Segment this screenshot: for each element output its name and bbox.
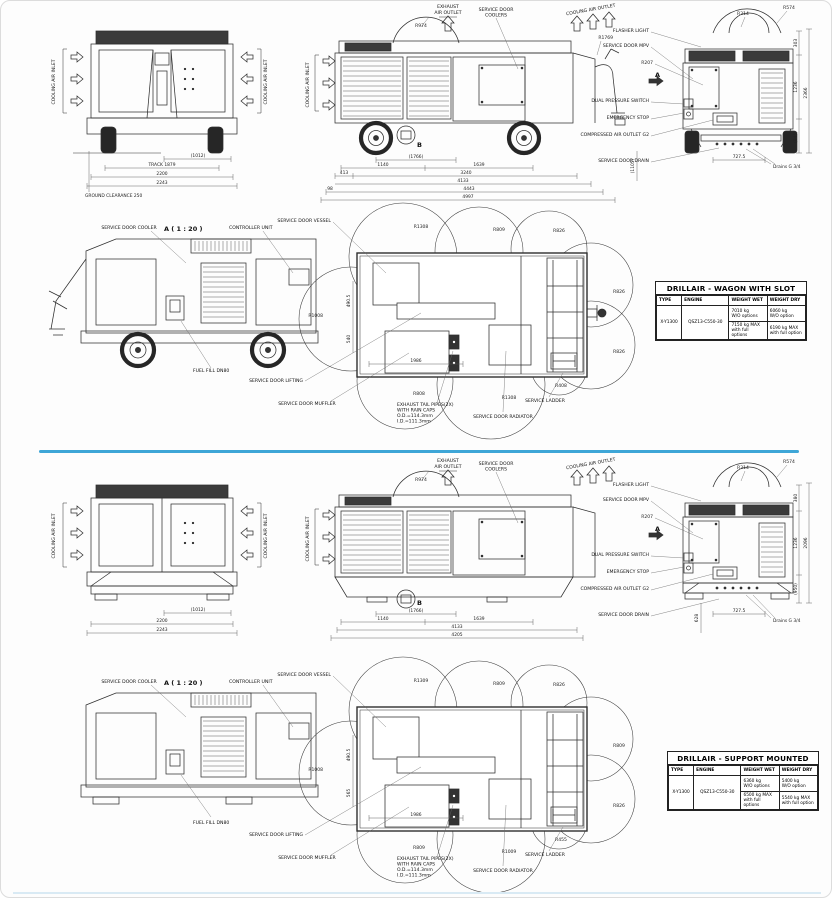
radius-314: R314 bbox=[737, 465, 749, 471]
dim-628: 628 bbox=[694, 614, 700, 623]
marker-b: B bbox=[417, 599, 422, 607]
label-mpv: SERVICE DOOR MPV bbox=[603, 497, 650, 503]
label-door-drain: SERVICE DOOR DRAIN bbox=[598, 158, 649, 164]
wagon-plan-view bbox=[299, 203, 635, 439]
spec-title: DRILLAIR - WAGON WITH SLOT bbox=[656, 282, 806, 295]
radius-bm: R1308 bbox=[502, 395, 517, 401]
label-muffler: SERVICE DOOR MUFFLER bbox=[278, 401, 336, 407]
dim-490: 490.5 bbox=[346, 295, 352, 308]
dim-490: 490.5 bbox=[346, 749, 352, 762]
cell-dry-a: 6060 kgW/O option bbox=[767, 306, 805, 322]
exhaust-note-3: O.D.=114.3mm bbox=[397, 867, 433, 873]
drawing-sheet: COOLING AIR INLET COOLING AIR INLET (101… bbox=[0, 0, 832, 898]
spec-grid: TYPE ENGINE WEIGHT WET WEIGHT DRY X-Y130… bbox=[656, 295, 806, 340]
label-door-cooler: SERVICE DOOR COOLER bbox=[101, 679, 157, 685]
col-engine: ENGINE bbox=[694, 766, 741, 776]
dim-4443: 4443 bbox=[463, 186, 474, 192]
label-exhaust-2: AIR OUTLET bbox=[434, 10, 461, 16]
dim-945: (945) bbox=[793, 131, 799, 143]
label-coolers-1: SERVICE DOOR bbox=[479, 7, 515, 13]
radius-rb: R826 bbox=[613, 349, 625, 355]
radius-207: R207 bbox=[641, 60, 653, 66]
dim-1986: 1986 bbox=[410, 358, 421, 364]
label-drains: Drains G 3/4 bbox=[773, 164, 801, 170]
radius-tr: R826 bbox=[553, 228, 565, 234]
dim-track: TRACK 1879 bbox=[148, 162, 176, 168]
dim-727: 727.5 bbox=[733, 154, 746, 160]
label-side-inlet: COOLING AIR INLET bbox=[305, 516, 311, 561]
cell-wet-a: 6360 kgW/O options bbox=[741, 776, 779, 792]
detail-scale: A ( 1 : 20 ) bbox=[164, 679, 202, 687]
spec-title: DRILLAIR - SUPPORT MOUNTED bbox=[668, 752, 818, 765]
dim-4133: 4133 bbox=[457, 178, 468, 184]
radius-dome: R974 bbox=[415, 477, 427, 483]
radius-towbar: R1769 bbox=[598, 35, 613, 41]
dim-2200: 2200 bbox=[156, 618, 167, 624]
panel-divider bbox=[39, 450, 799, 453]
label-exhaust-1: EXHAUST bbox=[437, 458, 459, 464]
dim-3240: 3240 bbox=[460, 170, 471, 176]
radius-574: R574 bbox=[783, 5, 795, 11]
cell-engine: QSZ13-C550-30 bbox=[694, 776, 741, 810]
wagon-rear-view bbox=[637, 9, 812, 181]
label-muffler: SERVICE DOOR MUFFLER bbox=[278, 855, 336, 861]
dim-1766: (1766) bbox=[409, 608, 424, 614]
airflow-arrows-left bbox=[63, 49, 83, 113]
cell-wet-a: 7010 kgW/O options bbox=[729, 306, 767, 322]
radius-tr: R826 bbox=[553, 682, 565, 688]
airflow-arrows-left bbox=[63, 503, 83, 567]
col-weight-wet: WEIGHT WET bbox=[729, 296, 767, 306]
label-side-inlet: COOLING AIR INLET bbox=[305, 62, 311, 107]
label-inlet-left: COOLING AIR INLET bbox=[51, 513, 57, 558]
wagon-drawing: COOLING AIR INLET COOLING AIR INLET (101… bbox=[1, 1, 832, 451]
exhaust-note-4: I.D.=111.3mm bbox=[397, 873, 431, 879]
label-inlet-left: COOLING AIR INLET bbox=[51, 59, 57, 104]
support-plan-view bbox=[299, 657, 635, 893]
cell-dry-b: 5540 kg MAXwith full option bbox=[779, 792, 817, 810]
marker-a: A bbox=[655, 525, 660, 533]
label-estop: EMERGENCY STOP bbox=[607, 115, 650, 121]
cell-wet-b: 6500 kg MAXwith full options bbox=[741, 792, 779, 810]
label-cooling-outlet: COOLING AIR OUTLET bbox=[566, 3, 616, 18]
dim-2243: 2243 bbox=[156, 627, 167, 633]
dim-1766: (1766) bbox=[409, 154, 424, 160]
label-coolers-2: COOLERS bbox=[485, 13, 507, 19]
cell-type: X-Y1300 bbox=[669, 776, 694, 810]
radius-lf: R1008 bbox=[308, 313, 323, 319]
dim-413: 413 bbox=[340, 170, 349, 176]
dim-1986: 1986 bbox=[410, 812, 421, 818]
radius-tl: R1309 bbox=[414, 678, 429, 684]
spec-grid: TYPE ENGINE WEIGHT WET WEIGHT DRY X-Y130… bbox=[668, 765, 818, 810]
col-type: TYPE bbox=[657, 296, 682, 306]
airflow-arrows-right bbox=[241, 503, 261, 567]
dim-4133: 4133 bbox=[451, 624, 462, 630]
exhaust-arrow-icon bbox=[439, 470, 457, 485]
label-vessel: SERVICE DOOR VESSEL bbox=[277, 218, 331, 224]
label-air-outlet-g2: COMPRESSED AIR OUTLET G2 bbox=[580, 586, 649, 592]
label-dps: DUAL PRESSURE SWITCH bbox=[591, 552, 649, 558]
wagon-detail-view bbox=[49, 231, 318, 368]
radius-lf: R1008 bbox=[308, 767, 323, 773]
marker-a: A bbox=[655, 71, 660, 79]
support-detail-view bbox=[81, 685, 318, 817]
cell-dry-a: 5400 kgW/O option bbox=[779, 776, 817, 792]
radius-rt: R809 bbox=[613, 743, 625, 749]
dim-1105: (1105) bbox=[630, 158, 636, 173]
label-coolers-1: SERVICE DOOR bbox=[479, 461, 515, 467]
col-type: TYPE bbox=[669, 766, 694, 776]
radius-207: R207 bbox=[641, 514, 653, 520]
dim-1140: 1140 bbox=[377, 162, 388, 168]
label-door-cooler: SERVICE DOOR COOLER bbox=[101, 225, 157, 231]
dim-303: 303 bbox=[793, 39, 799, 48]
dim-2366: 2366 bbox=[803, 87, 809, 98]
radius-tm: R809 bbox=[493, 227, 505, 233]
label-fuel-fill: FUEL FILL DN80 bbox=[193, 820, 229, 826]
dim-98: 98 bbox=[327, 186, 333, 192]
label-drains: Drains G 3/4 bbox=[773, 618, 801, 624]
dim-1012: (1012) bbox=[191, 153, 206, 159]
label-radiator: SERVICE DOOR RADIATOR bbox=[473, 868, 533, 874]
label-cooling-outlet: COOLING AIR OUTLET bbox=[566, 457, 616, 472]
label-inlet-right: COOLING AIR INLET bbox=[263, 513, 269, 558]
label-lifting: SERVICE DOOR LIFTING bbox=[249, 378, 303, 384]
exhaust-note-2: WITH RAIN CAPS bbox=[397, 862, 435, 868]
dim-4997: 4997 bbox=[462, 194, 473, 200]
exhaust-note-4: I.D.=111.3mm bbox=[397, 419, 431, 425]
label-dps: DUAL PRESSURE SWITCH bbox=[591, 98, 649, 104]
panel-wagon-with-slot: COOLING AIR INLET COOLING AIR INLET (101… bbox=[1, 1, 832, 451]
support-front-view bbox=[63, 485, 261, 636]
label-ladder: SERVICE LADDER bbox=[525, 398, 566, 404]
dim-727: 727.5 bbox=[733, 608, 746, 614]
dim-1639: 1639 bbox=[473, 162, 484, 168]
radius-bl: R808 bbox=[413, 391, 425, 397]
col-weight-dry: WEIGHT DRY bbox=[767, 296, 805, 306]
dim-2243: 2243 bbox=[156, 180, 167, 186]
wagon-side-view bbox=[315, 12, 729, 203]
panel-support-mounted: COOLING AIR INLET COOLING AIR INLET (101… bbox=[1, 455, 832, 895]
radius-dome: R974 bbox=[415, 23, 427, 29]
dim-380: 380 bbox=[793, 494, 799, 503]
exhaust-note-3: O.D.=114.3mm bbox=[397, 413, 433, 419]
col-engine: ENGINE bbox=[682, 296, 729, 306]
support-drawing: COOLING AIR INLET COOLING AIR INLET (101… bbox=[1, 455, 832, 895]
label-radiator: SERVICE DOOR RADIATOR bbox=[473, 414, 533, 420]
side-inlet-arrows bbox=[315, 55, 335, 111]
detail-scale: A ( 1 : 20 ) bbox=[164, 225, 202, 233]
dim-1012: (1012) bbox=[191, 607, 206, 613]
label-fuel-fill: FUEL FILL DN80 bbox=[193, 368, 229, 374]
side-leaders bbox=[421, 471, 518, 523]
label-controller: CONTROLLER UNIT bbox=[229, 225, 273, 231]
label-ladder: SERVICE LADDER bbox=[525, 852, 566, 858]
label-inlet-right: COOLING AIR INLET bbox=[263, 59, 269, 104]
label-flasher: FLASHER LIGHT bbox=[613, 28, 649, 34]
label-ground-clearance: GROUND CLEARANCE 250 bbox=[85, 193, 142, 199]
radius-bm: R1009 bbox=[502, 849, 517, 855]
col-weight-wet: WEIGHT WET bbox=[741, 766, 779, 776]
dim-1236: 1236 bbox=[793, 537, 799, 548]
radius-tl: R1308 bbox=[414, 224, 429, 230]
dim-2200: 2200 bbox=[156, 171, 167, 177]
dim-2096: 2096 bbox=[803, 537, 809, 548]
dim-950: (950) bbox=[793, 583, 799, 595]
side-inlet-arrows bbox=[315, 509, 335, 565]
radius-314: R314 bbox=[737, 11, 749, 17]
support-rear-view bbox=[649, 463, 812, 633]
radius-bl: R809 bbox=[413, 845, 425, 851]
label-flasher: FLASHER LIGHT bbox=[613, 482, 649, 488]
label-vessel: SERVICE DOOR VESSEL bbox=[277, 672, 331, 678]
label-lifting: SERVICE DOOR LIFTING bbox=[249, 832, 303, 838]
label-coolers-2: COOLERS bbox=[485, 467, 507, 473]
radius-br: R455 bbox=[555, 837, 567, 843]
radius-tm: R809 bbox=[493, 681, 505, 687]
cell-dry-b: 6190 kg MAXwith full option bbox=[767, 322, 805, 340]
support-side-view bbox=[315, 466, 615, 641]
airflow-arrows-right bbox=[241, 49, 261, 113]
label-air-outlet-g2: COMPRESSED AIR OUTLET G2 bbox=[580, 132, 649, 138]
radius-rt: R826 bbox=[613, 289, 625, 295]
cell-wet-b: 7150 kg MAXwith full options bbox=[729, 322, 767, 340]
bottom-rule bbox=[13, 892, 821, 894]
radius-rb: R826 bbox=[613, 803, 625, 809]
cell-engine: QSZ13-C550-30 bbox=[682, 306, 729, 340]
dim-1140: 1140 bbox=[377, 616, 388, 622]
radius-br: R408 bbox=[555, 383, 567, 389]
label-mpv: SERVICE DOOR MPV bbox=[603, 43, 650, 49]
dim-4205: 4205 bbox=[451, 632, 462, 638]
dim-1639: 1639 bbox=[473, 616, 484, 622]
spec-table-support: DRILLAIR - SUPPORT MOUNTED TYPE ENGINE W… bbox=[667, 751, 819, 811]
dim-565: 565 bbox=[346, 789, 352, 798]
label-estop: EMERGENCY STOP bbox=[607, 569, 650, 575]
radius-574: R574 bbox=[783, 459, 795, 465]
cell-type: X-Y1300 bbox=[657, 306, 682, 340]
dim-540: 540 bbox=[346, 335, 352, 344]
exhaust-note-2: WITH RAIN CAPS bbox=[397, 408, 435, 414]
spec-table-wagon: DRILLAIR - WAGON WITH SLOT TYPE ENGINE W… bbox=[655, 281, 807, 341]
exhaust-arrow-icon bbox=[439, 16, 457, 31]
label-door-drain: SERVICE DOOR DRAIN bbox=[598, 612, 649, 618]
dim-1236: 1236 bbox=[793, 81, 799, 92]
exhaust-note-1: EXHAUST TAIL PIPES(2X) bbox=[397, 402, 454, 408]
label-controller: CONTROLLER UNIT bbox=[229, 679, 273, 685]
label-exhaust-2: AIR OUTLET bbox=[434, 464, 461, 470]
col-weight-dry: WEIGHT DRY bbox=[779, 766, 817, 776]
marker-b: B bbox=[417, 141, 422, 149]
exhaust-note-1: EXHAUST TAIL PIPES(2X) bbox=[397, 856, 454, 862]
label-exhaust-1: EXHAUST bbox=[437, 4, 459, 10]
